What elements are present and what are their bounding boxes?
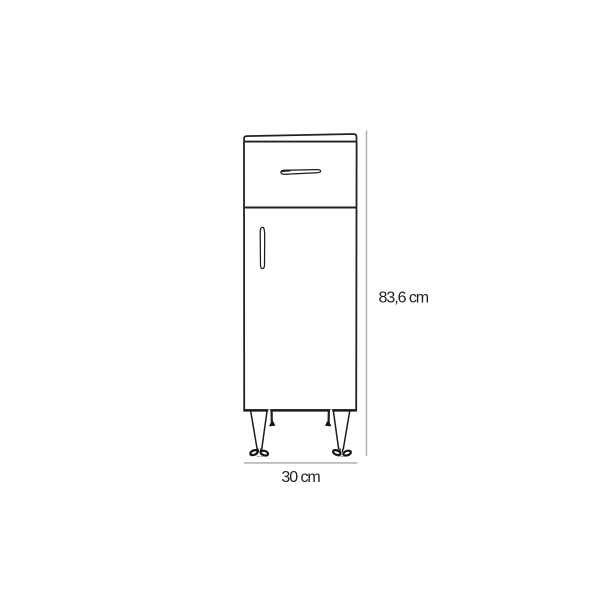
svg-text:30 cm: 30 cm: [281, 469, 320, 486]
svg-text:83,6 cm: 83,6 cm: [379, 290, 429, 307]
